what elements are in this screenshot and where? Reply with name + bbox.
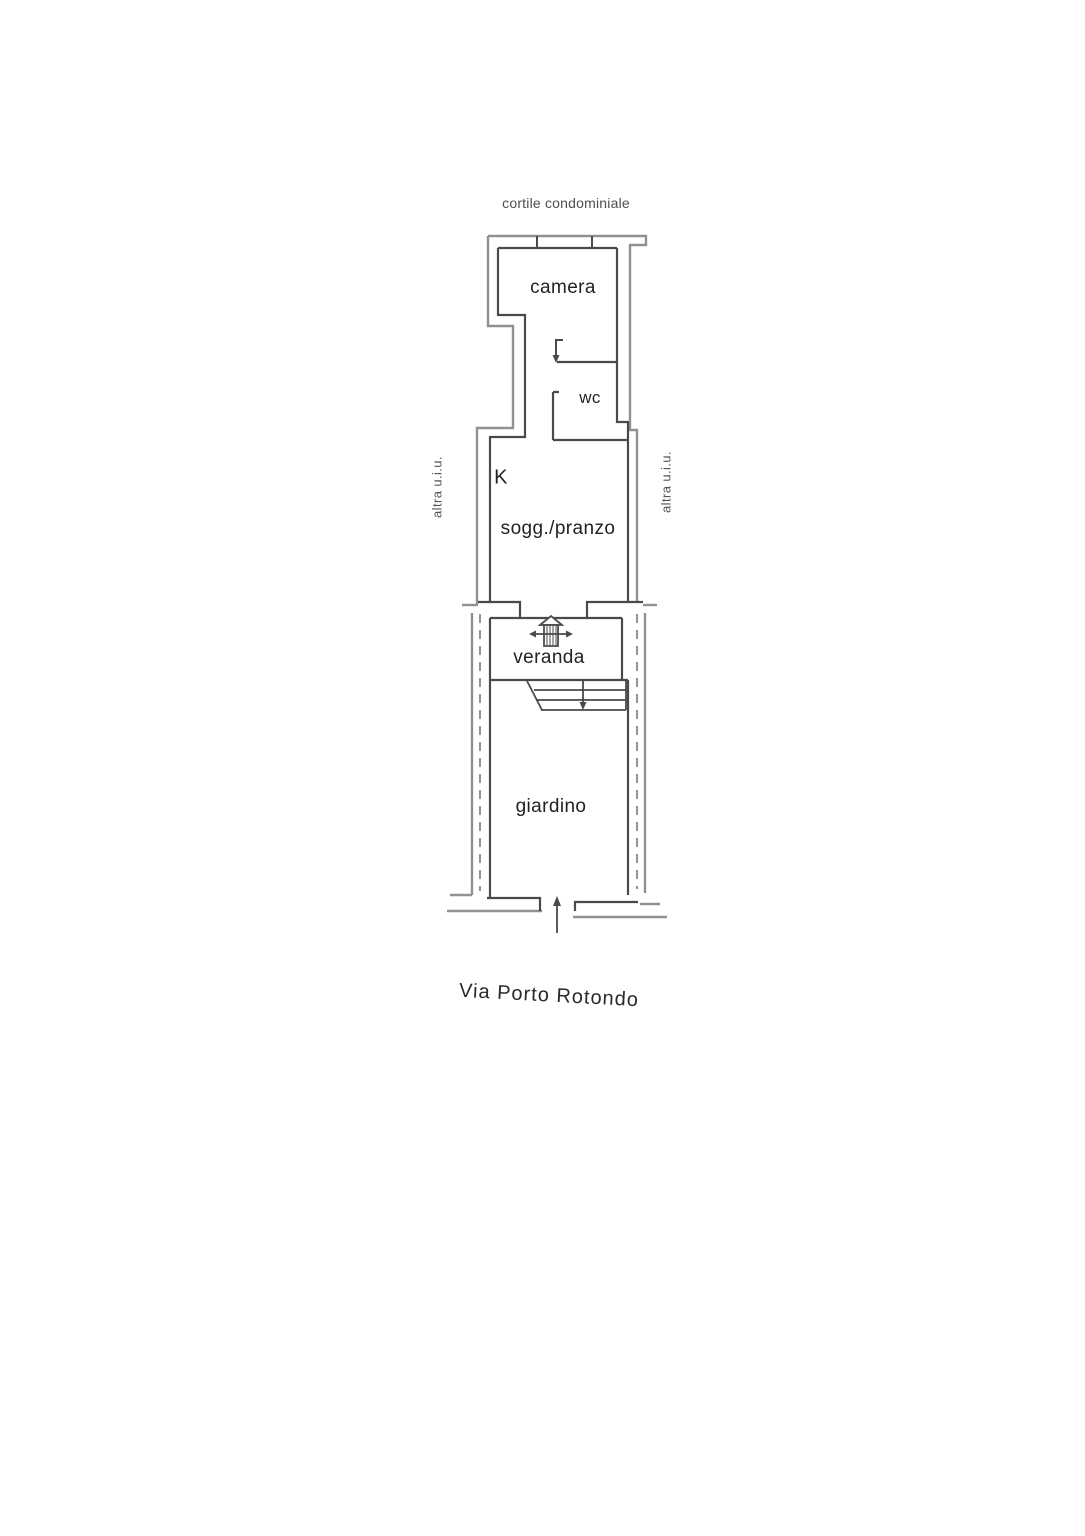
floor-plan-drawing	[0, 0, 1085, 1536]
label-garden: giardino	[516, 796, 587, 818]
wall-giardino-bottom-right	[575, 902, 638, 911]
label-courtyard: cortile condominiale	[502, 195, 630, 211]
wall-right-chain	[617, 248, 628, 602]
label-room-veranda: veranda	[513, 647, 584, 669]
street-entrance-arrow-icon	[553, 896, 561, 933]
label-other-unit-left: altra u.i.u.	[430, 456, 445, 518]
wall-sogg-bottom-right	[587, 602, 643, 618]
wall-sogg-bottom-left	[478, 602, 520, 618]
stairs-side-diagonal	[527, 681, 542, 710]
floor-plan-page: cortile condominiale camera wc K sogg./p…	[0, 0, 1085, 1536]
label-kitchen: K	[494, 467, 508, 490]
window-symbol	[537, 236, 592, 248]
label-room-bedroom: camera	[530, 277, 596, 299]
label-other-unit-right: altra u.i.u.	[659, 451, 674, 513]
stairs-treads	[534, 690, 626, 710]
label-room-wc: wc	[579, 388, 601, 408]
wall-giardino-bottom-left	[487, 898, 540, 911]
wall-wc-left	[553, 392, 559, 440]
stairs-down-arrow-icon	[580, 681, 587, 710]
entry-door-symbol	[529, 616, 573, 646]
outer-wall-left	[477, 236, 513, 604]
wc-door-swing-icon	[553, 340, 564, 363]
label-room-living: sogg./pranzo	[501, 518, 616, 540]
wall-left-chain	[490, 248, 525, 602]
stairs-symbol	[527, 681, 626, 710]
